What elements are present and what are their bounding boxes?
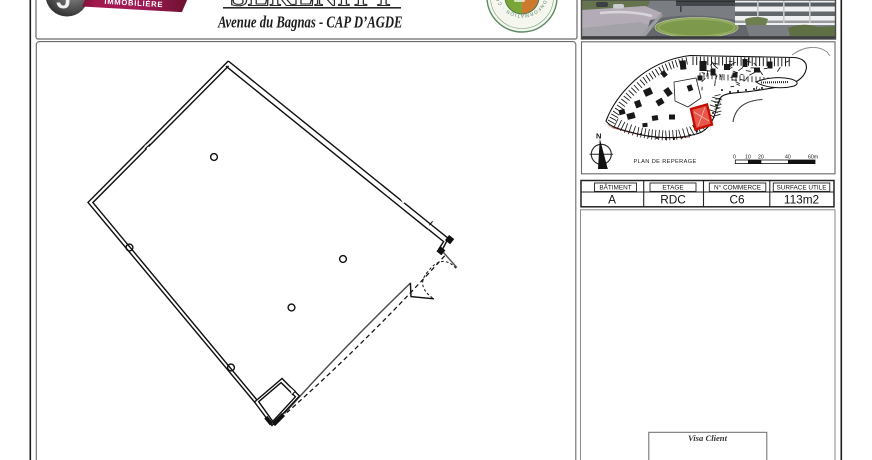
- svg-text:N: N: [596, 132, 601, 141]
- svg-text:113m2: 113m2: [784, 192, 819, 206]
- svg-text:A: A: [608, 192, 616, 206]
- svg-text:ETAGE: ETAGE: [662, 185, 683, 192]
- svg-text:BÂTIMENT: BÂTIMENT: [599, 183, 631, 192]
- svg-text:PLAN DE REPERAGE: PLAN DE REPERAGE: [634, 159, 697, 165]
- svg-text:C6: C6: [729, 192, 745, 206]
- svg-text:Visa Client: Visa Client: [688, 433, 728, 443]
- svg-text:N° COMMERCE: N° COMMERCE: [714, 184, 761, 192]
- svg-text:Avenue du Bagnas - CAP D’AGDE: Avenue du Bagnas - CAP D’AGDE: [217, 13, 402, 32]
- svg-text:RDC: RDC: [660, 192, 686, 206]
- svg-text:SERENITY: SERENITY: [230, 0, 395, 12]
- svg-text:SURFACE UTILE: SURFACE UTILE: [776, 185, 826, 192]
